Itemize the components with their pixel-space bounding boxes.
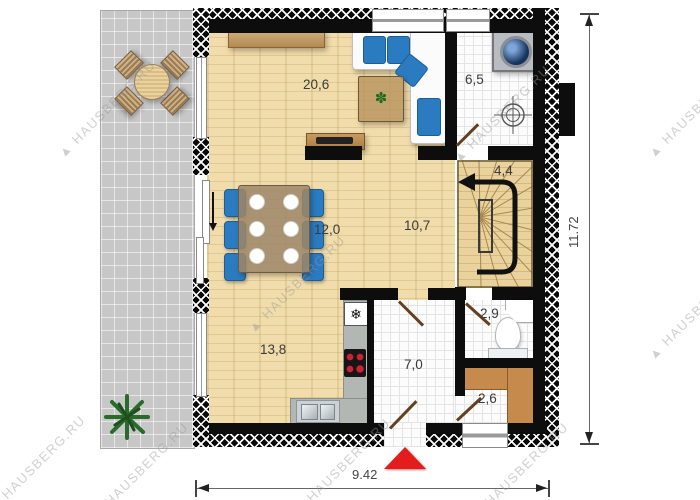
snowflake-glyph: ❄ bbox=[350, 306, 362, 322]
room-label-dining: 12,0 bbox=[314, 222, 340, 237]
pantry-shelf bbox=[507, 366, 535, 425]
tv bbox=[316, 137, 353, 144]
plant-icon: ✽ bbox=[375, 90, 388, 107]
dimension-tick bbox=[580, 443, 599, 445]
terrace-table bbox=[134, 64, 170, 100]
wall-bottom bbox=[193, 434, 385, 447]
wall-bottom bbox=[506, 434, 547, 447]
dimension-arrow-left-icon bbox=[198, 484, 209, 492]
stove bbox=[344, 349, 366, 377]
window-top-living bbox=[372, 9, 444, 32]
window-left-kitchen bbox=[196, 313, 207, 397]
staircase bbox=[457, 160, 533, 288]
dimension-arrow-right-icon bbox=[536, 484, 547, 492]
wall-stairs-bottom bbox=[492, 287, 533, 300]
dimension-arrow-down-icon bbox=[585, 432, 593, 443]
room-label-entry: 7,0 bbox=[404, 357, 423, 372]
wall-entry-wc bbox=[455, 300, 465, 396]
floor-plan: ✽ ❄ bbox=[0, 0, 700, 500]
dimension-arrow-up-icon bbox=[585, 15, 593, 26]
plate bbox=[249, 248, 265, 264]
wall-left-pier bbox=[193, 137, 209, 175]
watermark: ▲ HAUSBERG.RU bbox=[645, 259, 700, 362]
wall-partial bbox=[418, 146, 457, 160]
wall-right bbox=[545, 8, 559, 447]
dimension-line-horizontal bbox=[196, 488, 549, 489]
wall-wc-pantry bbox=[455, 358, 533, 368]
wall-kitchen-entry bbox=[367, 300, 374, 423]
washer-door bbox=[500, 36, 532, 68]
sink-bowl bbox=[320, 404, 335, 420]
room-label-living: 20,6 bbox=[303, 77, 329, 92]
drain-symbol bbox=[494, 96, 532, 134]
room-label-wc: 2,9 bbox=[480, 306, 499, 321]
wall-stairs-bottom bbox=[455, 287, 466, 300]
wall-living-utility bbox=[445, 28, 457, 160]
window-bottom-pantry bbox=[462, 423, 508, 448]
plate bbox=[283, 194, 299, 210]
entrance-marker-icon bbox=[384, 447, 426, 469]
room-label-utility: 6,5 bbox=[465, 72, 484, 87]
wall-tv bbox=[305, 146, 362, 160]
room-label-kitchen: 13,8 bbox=[260, 342, 286, 357]
room-label-hall: 10,7 bbox=[404, 218, 430, 233]
arrow-down-icon bbox=[209, 223, 217, 231]
plate bbox=[283, 248, 299, 264]
dimension-tick bbox=[195, 480, 197, 497]
coffee-table: ✽ bbox=[358, 76, 404, 122]
sliding-door-panel bbox=[196, 237, 204, 284]
window-left-living bbox=[196, 57, 207, 139]
kitchen-sink bbox=[296, 400, 340, 423]
plate bbox=[249, 194, 265, 210]
watermark: ▲ HAUSBERG.RU bbox=[645, 57, 700, 160]
sliding-door-arrow bbox=[212, 192, 214, 224]
watermark: ▲ HAUSBERG.RU bbox=[0, 412, 88, 500]
sink-bowl bbox=[301, 404, 318, 420]
wall-kitchen-hall bbox=[340, 288, 398, 300]
sofa-cushion bbox=[363, 36, 386, 64]
dimension-tick bbox=[548, 480, 550, 497]
plate bbox=[249, 221, 265, 237]
sliding-door-panel bbox=[202, 180, 210, 244]
dimension-line-vertical bbox=[589, 14, 590, 444]
wall-left-pier bbox=[193, 8, 209, 57]
fridge-icon: ❄ bbox=[344, 302, 368, 326]
sofa-cushion bbox=[417, 98, 441, 136]
wall-stairs-top bbox=[488, 146, 533, 160]
room-label-stairs: 4,4 bbox=[494, 163, 513, 178]
room-label-pantry: 2,6 bbox=[478, 391, 497, 406]
window-top-utility bbox=[446, 9, 490, 32]
dimension-label-vertical: 11.72 bbox=[566, 216, 581, 248]
wall-kitchen-hall bbox=[428, 288, 455, 300]
plate bbox=[283, 221, 299, 237]
wall-bottom bbox=[426, 434, 462, 447]
washing-machine bbox=[492, 29, 536, 72]
wall-left-pier bbox=[193, 395, 209, 447]
plant-icon bbox=[101, 391, 153, 443]
dimension-label-horizontal: 9.42 bbox=[352, 467, 377, 482]
